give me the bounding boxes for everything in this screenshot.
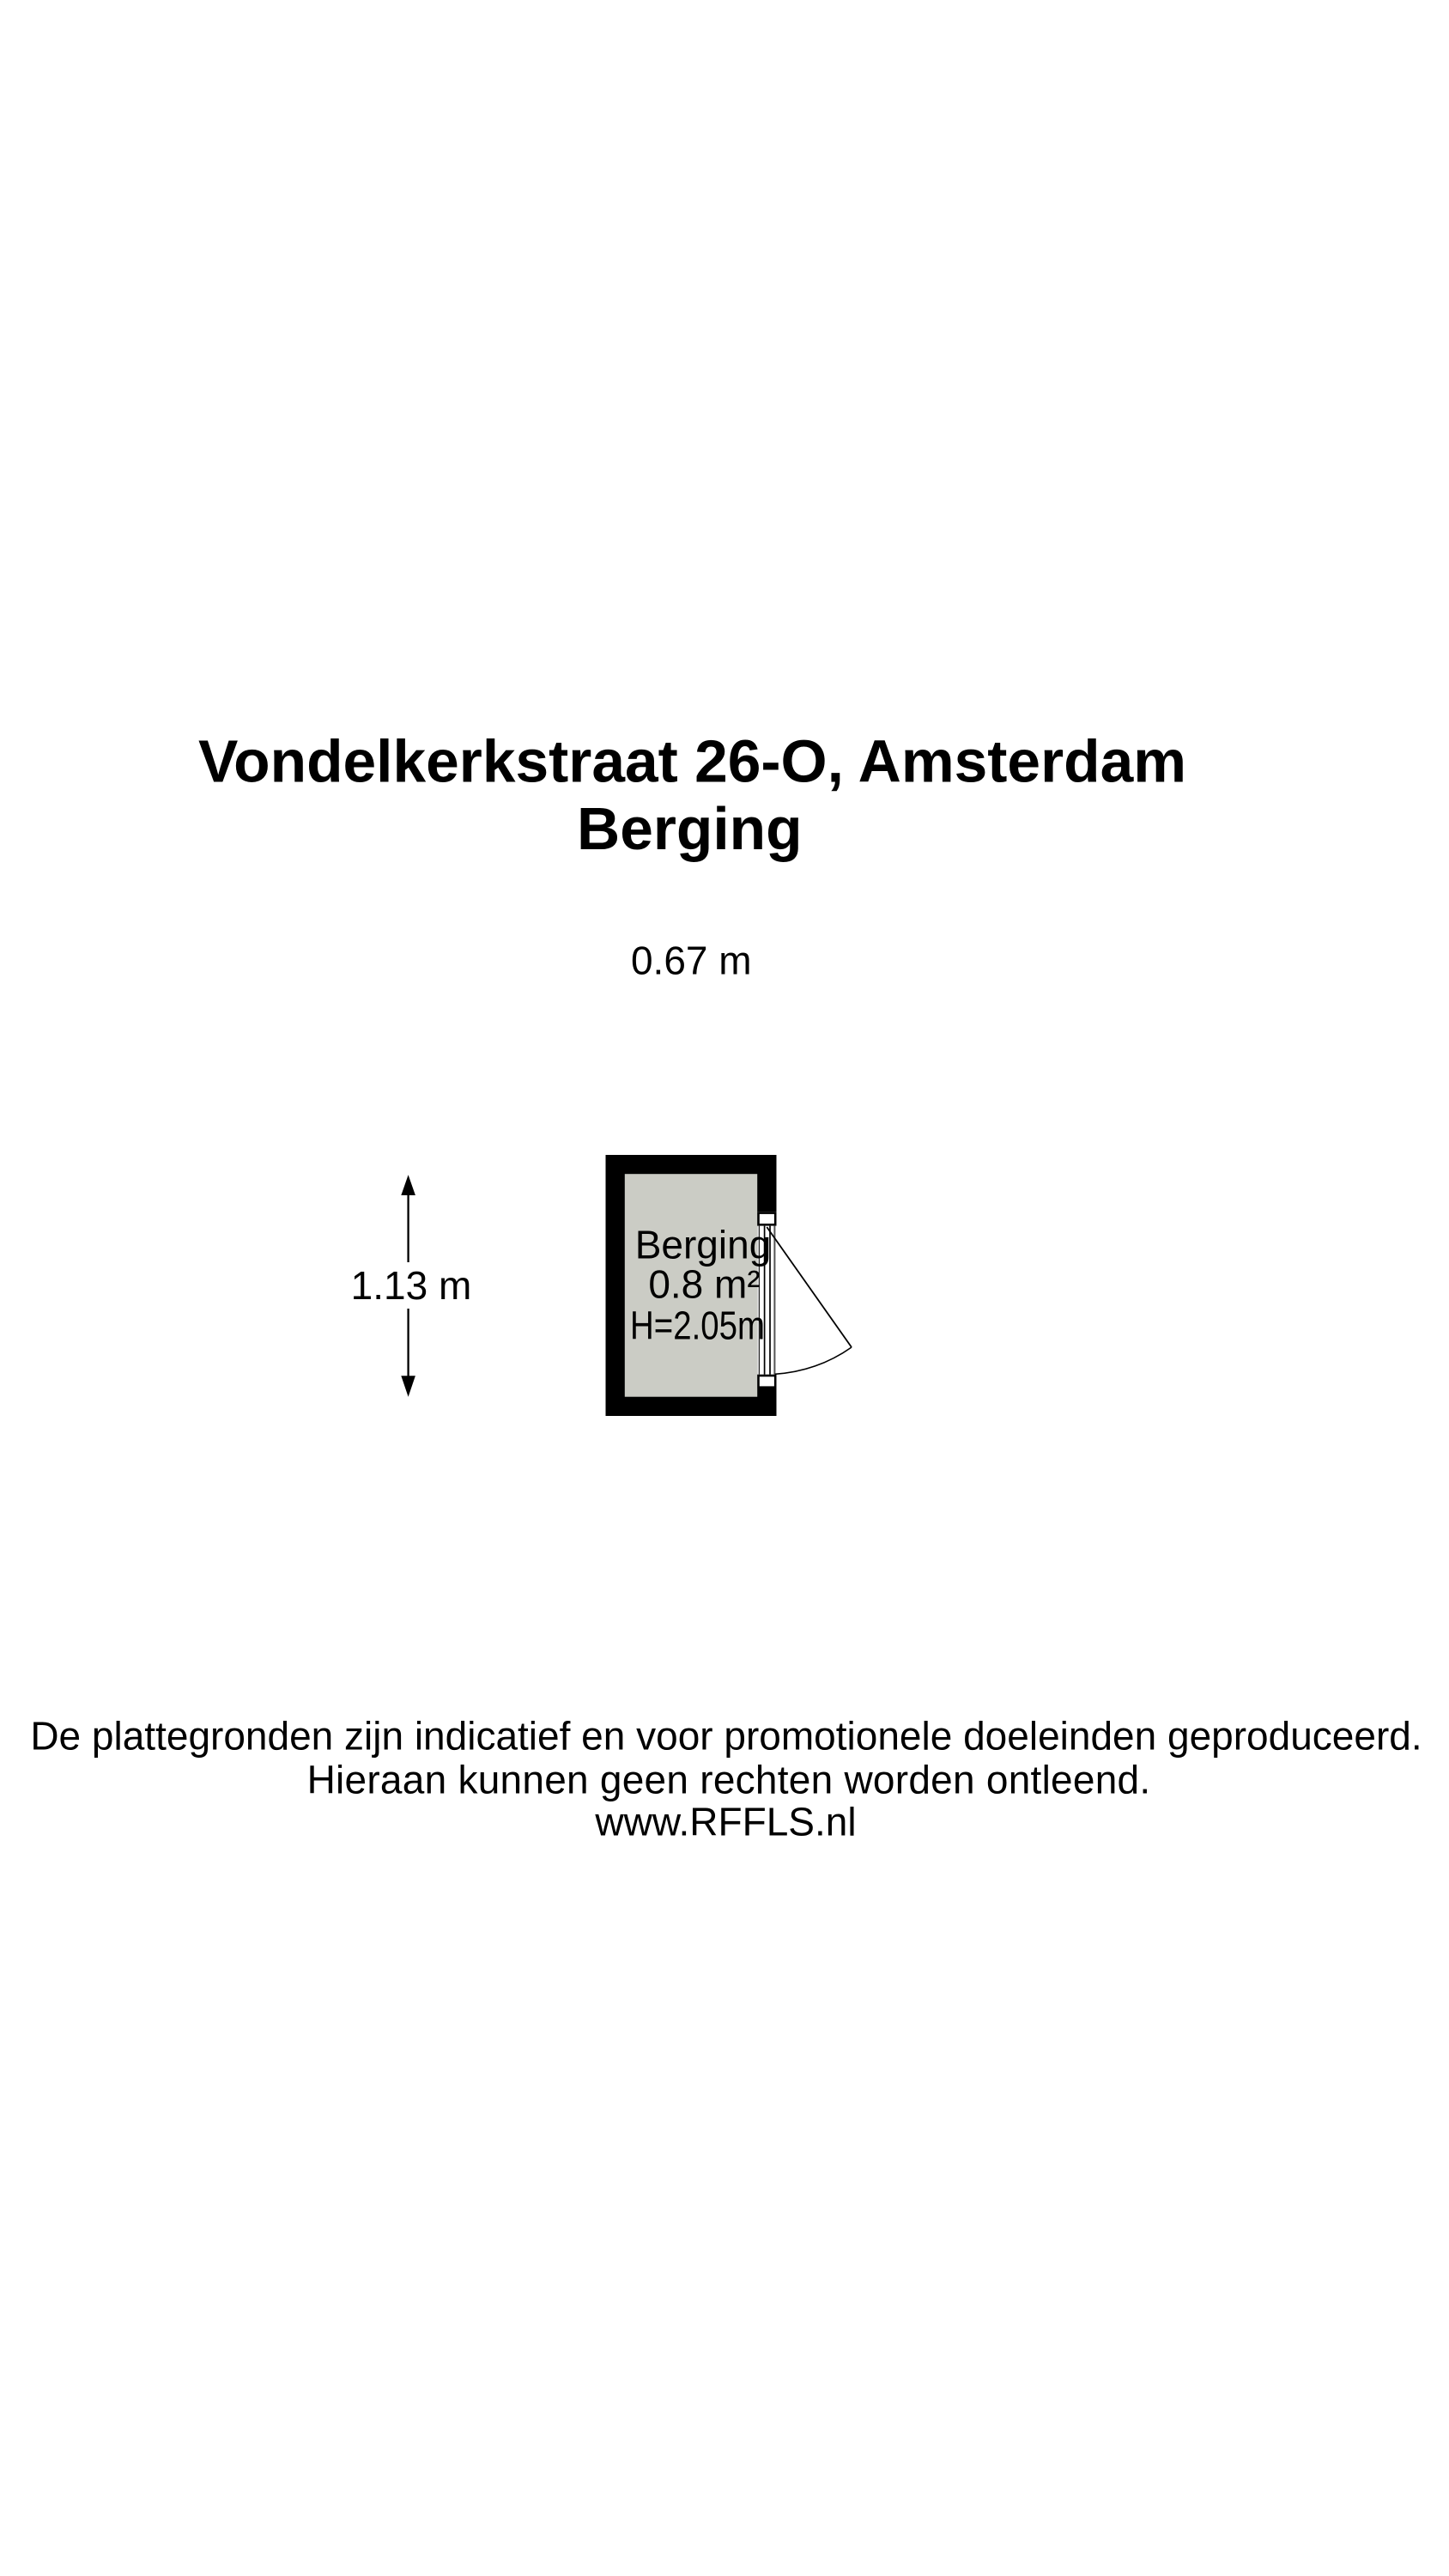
svg-text:Vondelkerkstraat 26-O, Amsterd: Vondelkerkstraat 26-O, Amsterdam: [198, 728, 1186, 795]
svg-text:Hieraan kunnen geen rechten wo: Hieraan kunnen geen rechten worden ontle…: [307, 1758, 1151, 1802]
svg-text:0.8 m²: 0.8 m²: [648, 1261, 760, 1306]
svg-text:0.67 m: 0.67 m: [631, 939, 752, 983]
svg-text:H=2.05m: H=2.05m: [630, 1303, 765, 1347]
svg-text:Berging: Berging: [577, 795, 803, 862]
svg-text:www.RFFLS.nl: www.RFFLS.nl: [594, 1800, 856, 1844]
svg-text:1.13 m: 1.13 m: [351, 1263, 472, 1308]
svg-text:De plattegronden zijn indicati: De plattegronden zijn indicatief en voor…: [30, 1714, 1422, 1759]
svg-text:Berging: Berging: [635, 1223, 772, 1267]
